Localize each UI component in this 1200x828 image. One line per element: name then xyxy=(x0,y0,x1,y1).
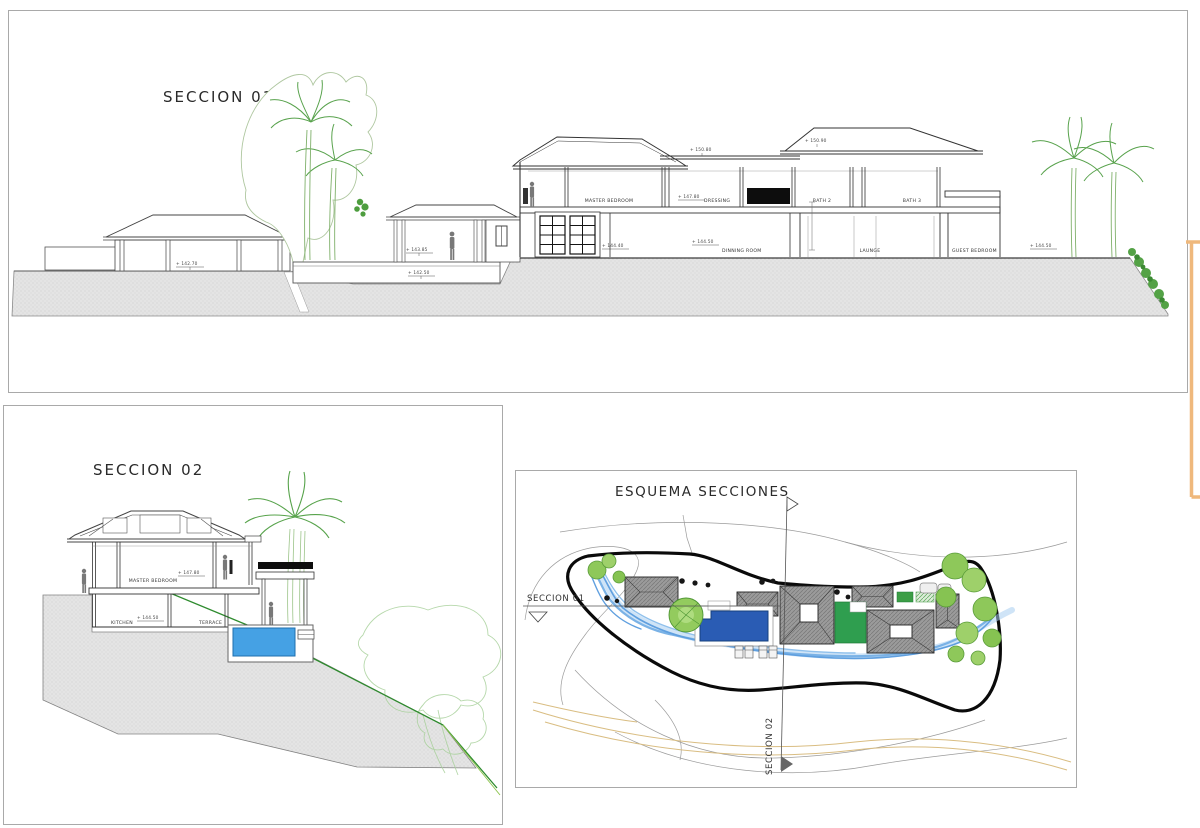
page-overlay xyxy=(0,0,1200,828)
drawing-sheet: SECCION 01 + 142.70 xyxy=(0,0,1200,828)
adjacent-sheet-edge xyxy=(1186,242,1200,497)
